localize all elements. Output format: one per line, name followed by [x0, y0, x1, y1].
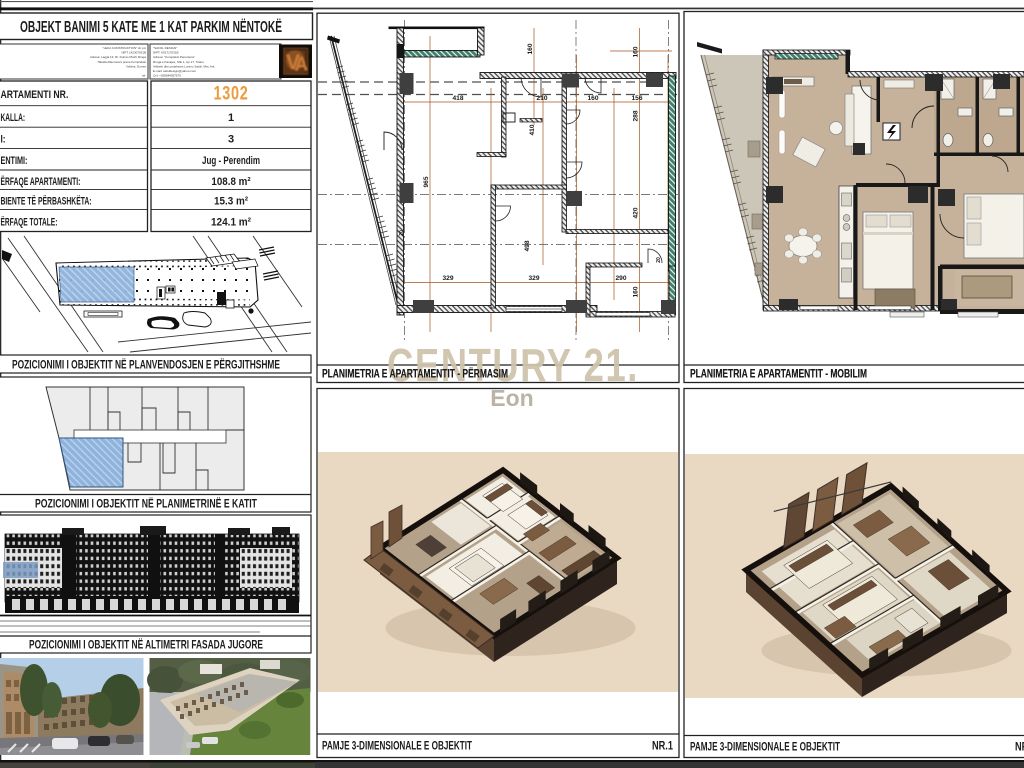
svg-text:Cel: +355684057575: Cel: +355684057575 [153, 73, 181, 77]
svg-text:BIENTE TË PËRBASHKËTA:: BIENTE TË PËRBASHKËTA: [1, 195, 92, 207]
svg-text:Veliera, Durres: Veliera, Durres [126, 64, 146, 68]
svg-text:108.8 m²: 108.8 m² [211, 177, 251, 189]
svg-text:965: 965 [423, 176, 430, 187]
svg-text:420: 420 [633, 207, 640, 218]
svg-text:NR.2: NR.2 [1015, 742, 1024, 754]
svg-text:124.1 m²: 124.1 m² [211, 216, 251, 229]
svg-text:POZICIONIMI I OBJEKTIT NË PLAN: POZICIONIMI I OBJEKTIT NË PLANVENDOSJEN … [12, 359, 280, 372]
svg-text:329: 329 [528, 275, 539, 282]
svg-text:210: 210 [536, 95, 547, 102]
svg-text:ËRFAQE APARTAMENTI:: ËRFAQE APARTAMENTI: [1, 175, 81, 187]
svg-text:POZICIONIMI I OBJEKTIT NË PLAN: POZICIONIMI I OBJEKTIT NË PLANIMETRINË E… [35, 498, 257, 511]
svg-text:Arkitekt dhe projektues Lorenc: Arkitekt dhe projektues Lorenc Safoli, M… [153, 64, 215, 68]
svg-text:Jug - Perendim: Jug - Perendim [202, 155, 260, 168]
svg-text:"LEKA CONSTRUCTION" sh.p.k: "LEKA CONSTRUCTION" sh.p.k [103, 46, 147, 50]
svg-text:418: 418 [452, 95, 463, 102]
svg-text:A: A [295, 55, 309, 76]
svg-text:160: 160 [633, 46, 640, 57]
svg-text:329: 329 [442, 275, 453, 282]
svg-text:15.3 m²: 15.3 m² [214, 196, 249, 208]
svg-text:20: 20 [399, 230, 405, 236]
svg-text:Adresa: Lagjia 13, Rr. Durres: Adresa: Lagjia 13, Rr. Durres Plazh,Rrug… [90, 55, 146, 59]
svg-text:288: 288 [633, 110, 640, 121]
svg-text:E-mail: safoldesign@yahoo.com: E-mail: safoldesign@yahoo.com [153, 69, 197, 73]
svg-text:PAMJE 3-DIMENSIONALE E OBJEKTI: PAMJE 3-DIMENSIONALE E OBJEKTIT [322, 741, 472, 753]
svg-text:"SAFOL DESIGN": "SAFOL DESIGN" [153, 46, 177, 50]
svg-text:CENTURY 21.: CENTURY 21. [387, 339, 639, 391]
svg-text:290: 290 [615, 275, 626, 282]
svg-text:160: 160 [587, 95, 598, 102]
svg-text:156: 156 [631, 95, 642, 102]
svg-text:160: 160 [633, 286, 640, 297]
svg-text:tel:: tel: [142, 74, 146, 78]
svg-text:OBJEKT BANIMI 5 KATE ME 1 KAT: OBJEKT BANIMI 5 KATE ME 1 KAT PARKIM NËN… [20, 19, 282, 36]
svg-text:160: 160 [527, 43, 534, 54]
svg-text:498: 498 [524, 240, 531, 251]
svg-text:ËRFAQE TOTALE:: ËRFAQE TOTALE: [1, 216, 58, 228]
svg-text:I:: I: [1, 133, 6, 145]
svg-text:NIPT L42307031B: NIPT L42307031B [121, 51, 146, 55]
svg-text:1302: 1302 [213, 81, 248, 104]
svg-text:1: 1 [228, 112, 234, 124]
svg-text:410: 410 [529, 124, 536, 135]
svg-text:PAMJE 3-DIMENSIONALE E OBJEKTI: PAMJE 3-DIMENSIONALE E OBJEKTIT [690, 742, 840, 754]
svg-text:20: 20 [656, 257, 662, 263]
svg-text:Rruga e Kavajes, Shk 1, Ap 17,: Rruga e Kavajes, Shk 1, Ap 17, Tirane [153, 60, 204, 64]
svg-text:PLANIMETRIA E APARTAMENTIT - M: PLANIMETRIA E APARTAMENTIT - MOBILIM [690, 369, 867, 381]
svg-text:KALLA:: KALLA: [1, 111, 26, 123]
svg-text:NIPT: K91717031B: NIPT: K91717031B [153, 51, 179, 55]
svg-text:NR.1: NR.1 [652, 741, 673, 753]
svg-text:Adresa: "Kompleksi Panorama": Adresa: "Kompleksi Panorama" [153, 55, 195, 59]
svg-text:PLANIMETRIA E APARTAMENTIT - P: PLANIMETRIA E APARTAMENTIT - PËRMASIM [322, 368, 508, 381]
svg-text:3: 3 [228, 134, 234, 146]
svg-text:ENTIMI:: ENTIMI: [1, 155, 28, 167]
svg-text:Eon: Eon [490, 385, 533, 411]
svg-text:Nikolla Alikomneni prane Kompl: Nikolla Alikomneni prane Kompleksit [98, 60, 147, 64]
svg-text:POZICIONIMI I OBJEKTIT NË ALTI: POZICIONIMI I OBJEKTIT NË ALTIMETRI FASA… [29, 639, 263, 652]
svg-text:ARTAMENTI NR.: ARTAMENTI NR. [1, 89, 69, 101]
